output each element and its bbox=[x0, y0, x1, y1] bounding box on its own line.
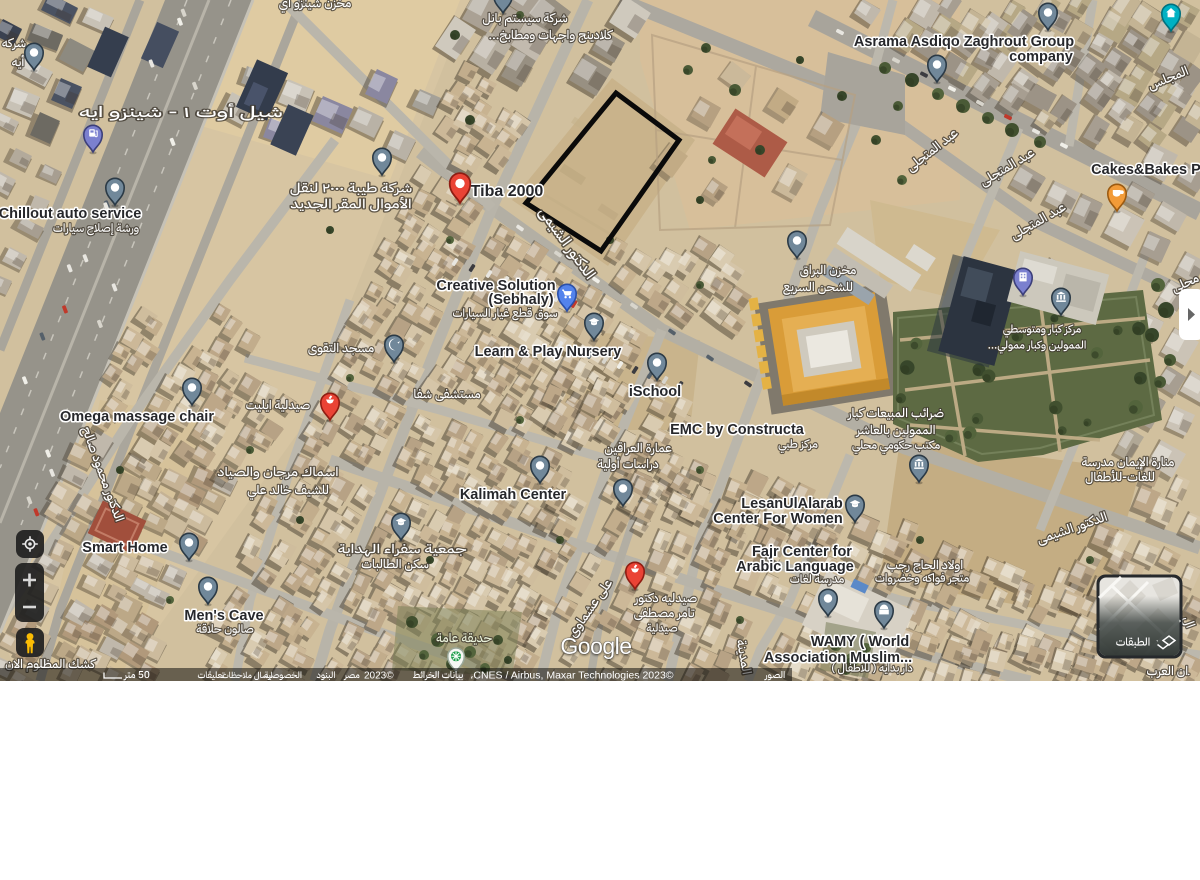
svg-text:Tiba 2000: Tiba 2000 bbox=[471, 183, 544, 200]
svg-text:(Sebhaly): (Sebhaly) bbox=[488, 292, 553, 308]
svg-text:Omega massage chair: Omega massage chair bbox=[60, 409, 214, 425]
svg-text:Google: Google bbox=[560, 633, 631, 659]
svg-text:Center For Women: Center For Women bbox=[713, 511, 842, 527]
svg-text:Cakes&Bakes P: Cakes&Bakes P bbox=[1091, 162, 1200, 178]
svg-text:Chillout auto service: Chillout auto service bbox=[0, 206, 141, 222]
svg-text:،CNES / Airbus, Maxar Technolo: ،CNES / Airbus, Maxar Technologies 2023© bbox=[470, 670, 674, 682]
svg-text:Asrama Asdiqo Zaghrout Group: Asrama Asdiqo Zaghrout Group bbox=[854, 34, 1074, 50]
svg-text:Kalimah Center: Kalimah Center bbox=[460, 487, 567, 503]
svg-text:iSchool: iSchool bbox=[629, 384, 681, 400]
svg-text:Fajr Center for: Fajr Center for bbox=[752, 544, 852, 560]
svg-text:Arabic Language: Arabic Language bbox=[736, 559, 854, 575]
svg-text:Men's Cave: Men's Cave bbox=[184, 608, 263, 624]
svg-text:2023©: 2023© bbox=[364, 671, 394, 682]
svg-text:EMC by Constructa: EMC by Constructa bbox=[670, 422, 805, 438]
svg-text:Association Muslim...: Association Muslim... bbox=[764, 650, 912, 666]
svg-text:WAMY ( World: WAMY ( World bbox=[811, 634, 910, 650]
svg-text:Learn & Play Nursery: Learn & Play Nursery bbox=[475, 344, 622, 360]
svg-text:LesanUlAlarab: LesanUlAlarab bbox=[741, 496, 843, 512]
svg-text:company: company bbox=[1009, 49, 1073, 65]
svg-text:Smart Home: Smart Home bbox=[82, 540, 167, 556]
